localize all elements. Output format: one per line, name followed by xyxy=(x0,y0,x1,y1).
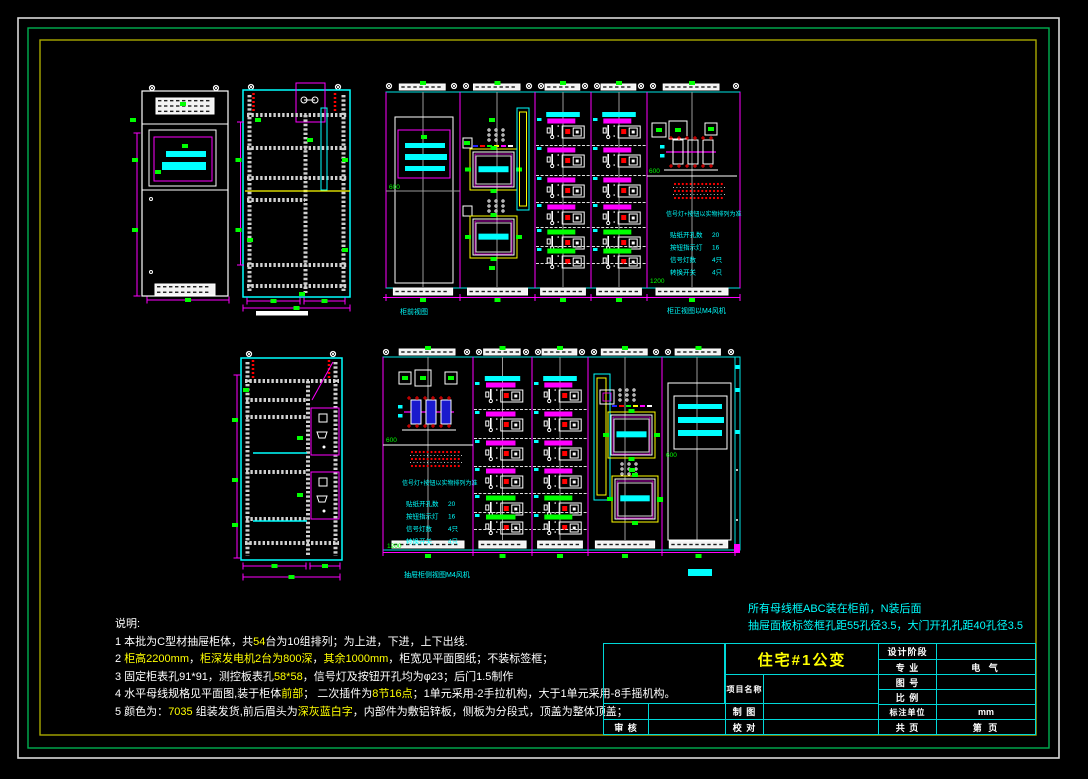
indicator-dot xyxy=(678,197,680,199)
cad-shape xyxy=(628,473,630,475)
panel-note-label: 信号灯数 xyxy=(670,255,697,264)
cad-shape xyxy=(475,440,480,443)
unit-nameplate xyxy=(478,234,508,240)
indicator-dot xyxy=(434,451,436,453)
cad-shape xyxy=(626,399,628,401)
cad-shape xyxy=(554,531,556,533)
dim-text-mark xyxy=(130,118,136,122)
panel-note-label: 转换开关 xyxy=(670,268,697,277)
dim-text-mark xyxy=(491,213,497,217)
indicator-dot xyxy=(430,465,432,467)
cad-shape xyxy=(593,147,598,150)
door-window-frame xyxy=(154,137,212,181)
check-label: 校 对 xyxy=(725,719,764,735)
cad-shape xyxy=(551,194,554,197)
cad-shape xyxy=(603,187,606,192)
cad-shape xyxy=(554,485,556,487)
cad-shape xyxy=(150,271,153,274)
indicator-dot xyxy=(446,465,448,467)
cad-shape xyxy=(678,430,722,436)
cad-shape xyxy=(573,424,576,427)
cad-shape xyxy=(554,512,556,514)
dim-text-mark xyxy=(656,128,662,132)
notes-segment: ，内部件为敷铝锌板，侧板为分段式，顶盖为整体顶盖； xyxy=(353,706,628,718)
dim-1200: 1200 xyxy=(650,278,665,285)
cad-shape xyxy=(613,221,615,223)
cad-shape xyxy=(600,390,614,404)
dim-text-mark xyxy=(299,292,305,296)
dim-1200: 1200 xyxy=(387,543,402,550)
indicator-dot xyxy=(411,465,413,467)
indicator-dot xyxy=(674,190,676,192)
panel-note-value: 20 xyxy=(712,232,720,239)
column-nameplate xyxy=(485,376,520,381)
dim-text-mark xyxy=(500,346,506,350)
cad-shape xyxy=(475,382,480,385)
notes-segment: 柜高2200mm xyxy=(124,653,189,665)
panel-note-label: 按钮指示灯 xyxy=(406,512,439,521)
cad-shape xyxy=(547,258,550,263)
cad-shape xyxy=(496,521,498,523)
dim-text-mark xyxy=(307,138,313,142)
cad-shape xyxy=(544,478,547,483)
cad-shape xyxy=(496,502,498,504)
cad-shape xyxy=(613,154,615,156)
notes-line-5: 5 颜色为：7035 组装发货,前后眉头为深灰蓝白字，内部件为敷铝锌板，侧板为分… xyxy=(115,704,675,722)
indicator-dot xyxy=(427,458,429,460)
busbar-notes: 所有母线框ABC装在柜前，N装后面 抽屉面板标签框孔距55孔径3.5，大门开孔孔… xyxy=(748,601,1023,635)
cad-shape xyxy=(554,502,556,504)
cad-shape xyxy=(619,394,621,396)
cad-shape xyxy=(573,395,576,398)
cad-shape xyxy=(534,411,539,414)
indicator-dot xyxy=(438,465,440,467)
cad-shape xyxy=(554,475,556,477)
indicator-dot xyxy=(693,197,695,199)
cad-shape xyxy=(632,242,635,245)
breaker-pole xyxy=(411,400,421,424)
cad-shape xyxy=(593,248,598,251)
indicator-lamp xyxy=(621,240,626,245)
notes-segment: 58*58 xyxy=(274,671,303,683)
cad-shape xyxy=(486,524,489,529)
cad-shape xyxy=(495,200,497,202)
door-panel xyxy=(395,117,453,283)
cad-shape xyxy=(486,505,489,510)
cad-shape xyxy=(405,166,445,171)
indicator-dot xyxy=(411,458,413,460)
cad-shape xyxy=(502,139,504,141)
cad-shape xyxy=(486,392,489,397)
panel-note-label: 按钮指示灯 xyxy=(670,243,703,252)
cad-shape xyxy=(534,514,539,517)
dim-text-mark xyxy=(322,299,328,303)
cad-shape xyxy=(537,118,542,121)
notes-segment: 8节16点 xyxy=(372,688,412,700)
panel-note-label: 转换开关 xyxy=(406,537,433,546)
indicator-lamp xyxy=(504,506,509,511)
cad-shape xyxy=(495,205,497,207)
column-nameplate xyxy=(543,376,577,381)
row-discipline-label: 专 业 xyxy=(878,659,937,675)
notes-segment: 柜深发电机2台为800深 xyxy=(200,653,312,665)
cad-shape xyxy=(544,421,547,426)
draw-value xyxy=(763,703,879,720)
indicator-dot xyxy=(686,190,688,192)
indicator-dot xyxy=(717,197,719,199)
cad-shape xyxy=(495,210,497,212)
dim-600: 600 xyxy=(389,184,400,191)
cad-shape xyxy=(463,206,472,216)
notes-segment: 7035 xyxy=(168,706,192,718)
cad-shape xyxy=(607,221,610,224)
drawer-label-strip xyxy=(544,469,572,474)
drawer-label-strip xyxy=(603,249,631,254)
cad-shape xyxy=(607,135,610,138)
cad-shape xyxy=(613,184,615,186)
busbar-note-line1: 所有母线框ABC装在柜前，N装后面 xyxy=(748,601,1023,618)
cad-shape xyxy=(514,481,517,484)
cad-shape xyxy=(628,463,630,465)
dim-text-mark xyxy=(491,257,497,261)
unit-nameplate xyxy=(620,495,649,501)
cad-shape xyxy=(496,389,498,391)
cad-shape xyxy=(678,417,724,423)
cad-shape xyxy=(557,265,559,267)
cad-shape xyxy=(607,265,610,268)
dim-text-mark xyxy=(180,102,186,106)
cad-shape xyxy=(547,128,550,133)
panel-note-label: 信号灯数 xyxy=(406,524,433,533)
dim-text-mark xyxy=(557,554,563,558)
notes-line-3: 3 固定柜表孔91*91，测控板表孔58*58，信号灯及按钮开孔均为φ23；后门… xyxy=(115,669,675,687)
cad-shape xyxy=(547,187,550,192)
notes-segment: 2 xyxy=(115,653,124,665)
cad-shape xyxy=(489,531,492,534)
cad-shape xyxy=(496,428,498,430)
notes-segment: 其余1000mm xyxy=(323,653,388,665)
row-pages-label: 共 页 xyxy=(878,719,937,735)
cad-shape xyxy=(613,125,615,127)
notes-title: 说明: xyxy=(115,616,675,634)
indicator-lamp xyxy=(565,129,570,134)
cad-shape xyxy=(514,395,517,398)
dim-text-mark xyxy=(689,81,695,85)
cad-shape xyxy=(576,160,579,163)
indicator-lamp xyxy=(565,240,570,245)
cad-shape xyxy=(660,145,665,149)
cad-shape xyxy=(551,265,554,268)
unit-nameplate xyxy=(616,431,646,437)
cad-shape xyxy=(502,134,504,136)
dim-text-mark xyxy=(185,298,191,302)
cad-shape xyxy=(496,457,498,459)
dim-text-mark xyxy=(132,228,138,232)
indicator-dot xyxy=(721,183,723,185)
cad-shape xyxy=(603,157,606,162)
dim-text-mark xyxy=(696,346,702,350)
cad-shape xyxy=(496,418,498,420)
indicator-dot xyxy=(430,458,432,460)
dim-text-mark xyxy=(420,81,426,85)
indicator-lamp xyxy=(565,188,570,193)
cad-shape xyxy=(736,469,738,471)
indicator-lamp xyxy=(565,158,570,163)
cad-shape xyxy=(544,505,547,510)
indicator-dot xyxy=(701,183,703,185)
indicator-lamp xyxy=(504,479,509,484)
cad-shape xyxy=(537,229,542,232)
cad-shape xyxy=(496,485,498,487)
caption-rear-view: 柜正视图以M4风机 xyxy=(667,306,726,315)
drawer-label-strip xyxy=(486,441,515,446)
dim-text-mark xyxy=(622,346,628,350)
cad-shape xyxy=(495,139,497,141)
column-nameplate xyxy=(546,112,580,117)
dim-text-mark xyxy=(500,554,506,558)
indicator-dot xyxy=(693,190,695,192)
notes-line-2: 2 柜高2200mm，柜深发电机2台为800深，其余1000mm，柜宽见平面图纸… xyxy=(115,651,675,669)
dim-text-mark xyxy=(247,238,253,242)
notes-segment: ，柜宽见平面图纸；不装标签框； xyxy=(388,653,553,665)
notes-segment: 台为10组排列；为上进，下进，上下出线. xyxy=(265,636,467,648)
cad-shape xyxy=(554,418,556,420)
panel-note-header: 信号灯+按钮以实物排列为准 xyxy=(402,479,478,487)
indicator-dot xyxy=(438,458,440,460)
indicator-dot xyxy=(450,451,452,453)
unit-nameplate xyxy=(478,166,508,172)
notes-segment: 5 颜色为： xyxy=(115,706,168,718)
dim-600: 600 xyxy=(666,452,677,459)
draw-label: 制 图 xyxy=(725,703,764,720)
dim-text-mark xyxy=(132,158,138,162)
drawer-label-strip xyxy=(486,496,515,501)
indicator-dot xyxy=(717,190,719,192)
dim-text-mark xyxy=(675,128,681,132)
indicator-dot xyxy=(438,451,440,453)
cad-shape xyxy=(475,495,480,498)
drawer-label-strip xyxy=(603,178,631,183)
drawer-label-strip xyxy=(486,383,515,388)
cad-shape xyxy=(613,265,615,267)
cad-shape xyxy=(537,177,542,180)
cad-shape xyxy=(496,447,498,449)
cad-shape xyxy=(734,544,740,552)
dim-text-mark xyxy=(425,554,431,558)
cad-shape xyxy=(736,388,740,392)
indicator-dot xyxy=(450,458,452,460)
drawing-title: 住宅#1公变 xyxy=(725,643,879,675)
dim-text-mark xyxy=(402,376,408,380)
dim-text-mark xyxy=(465,168,471,172)
cad-shape xyxy=(593,229,598,232)
notes-segment: 深灰蓝白字 xyxy=(298,706,353,718)
cad-shape xyxy=(554,457,556,459)
dim-text-mark xyxy=(342,158,348,162)
panel-note-value: 4只 xyxy=(448,538,459,546)
panel-note-value: 16 xyxy=(712,245,720,252)
dim-text-mark xyxy=(182,144,188,148)
indicator-dot xyxy=(450,465,452,467)
dim-text-mark xyxy=(322,564,328,568)
indicator-dot xyxy=(697,183,699,185)
end-panel-strip xyxy=(735,357,740,550)
dim-text-mark xyxy=(616,298,622,302)
drawer-label-strip xyxy=(544,383,572,388)
cad-shape xyxy=(544,450,547,455)
drawer-label-strip xyxy=(486,469,515,474)
indicator-dot xyxy=(686,197,688,199)
cad-shape xyxy=(323,510,326,513)
indicator-dot xyxy=(427,465,429,467)
drawer-label-strip xyxy=(547,178,575,183)
cad-shape xyxy=(554,447,556,449)
indicator-dot xyxy=(705,197,707,199)
drawer-label-strip xyxy=(544,412,572,417)
dim-text-mark xyxy=(465,235,471,239)
busbar-note-line2: 抽屉面板标签框孔距55孔径3.5，大门开孔孔距40孔径3.5 xyxy=(748,618,1023,635)
indicator-dot xyxy=(446,458,448,460)
cad-shape xyxy=(488,205,490,207)
dim-600: 600 xyxy=(649,168,660,175)
dim-text-mark xyxy=(489,266,495,270)
cad-shape xyxy=(150,198,153,201)
drawer-label-strip xyxy=(486,412,515,417)
cad-shape xyxy=(736,430,740,434)
cad-shape xyxy=(557,194,559,196)
cad-shape xyxy=(633,389,635,391)
dim-text-mark xyxy=(232,418,238,422)
indicator-dot xyxy=(682,190,684,192)
cad-shape xyxy=(613,211,615,213)
panel-note-value: 4只 xyxy=(448,525,459,533)
cad-shape xyxy=(537,147,542,150)
panel-note-value: 20 xyxy=(448,501,456,508)
dim-text-mark xyxy=(629,468,635,472)
riser-duct xyxy=(517,108,529,210)
indicator-lamp xyxy=(565,215,570,220)
drawer-label-strip xyxy=(603,230,631,235)
dim-text-mark xyxy=(464,141,470,145)
cad-shape xyxy=(502,210,504,212)
dim-text-mark xyxy=(495,81,501,85)
drawer-label-strip xyxy=(486,515,515,520)
cad-shape xyxy=(607,164,610,167)
notes-segment: ， xyxy=(189,653,200,665)
cad-shape xyxy=(551,164,554,167)
row-dim-unit-value: mm xyxy=(936,704,1036,720)
dim-text-mark xyxy=(495,298,501,302)
scale-bar xyxy=(256,311,308,316)
cad-shape xyxy=(405,143,445,148)
indicator-dot xyxy=(454,458,456,460)
indicator-lamp xyxy=(562,451,567,456)
caption-section-view: 抽屉柜侧视图M4风机 xyxy=(404,570,470,579)
dim-text-mark xyxy=(603,433,609,437)
cad-shape xyxy=(547,157,550,162)
panel-note-value: 4只 xyxy=(712,256,723,264)
caption-front-view: 柜前视图 xyxy=(400,307,428,316)
notes-segment: ； 二次插件为 xyxy=(303,688,372,700)
cad-shape xyxy=(593,204,598,207)
dim-text-mark xyxy=(289,575,295,579)
cad-shape xyxy=(520,112,527,206)
panel-note-label: 贴纸开孔数 xyxy=(670,230,703,239)
cad-shape xyxy=(475,514,480,517)
dim-text-mark xyxy=(629,409,635,413)
project-name-label: 项目名称 xyxy=(725,674,764,704)
nameplate-bar xyxy=(162,162,206,170)
cad-shape xyxy=(537,204,542,207)
drawer-label-strip xyxy=(603,119,631,124)
dim-text-mark xyxy=(297,493,303,497)
indicator-dot xyxy=(419,458,421,460)
check-value xyxy=(763,719,879,735)
indicator-dot xyxy=(678,190,680,192)
dim-text-mark xyxy=(420,376,426,380)
dim-text-mark xyxy=(236,228,242,232)
cad-shape xyxy=(621,463,623,465)
indicator-dot xyxy=(690,197,692,199)
cad-shape xyxy=(557,211,559,213)
dim-text-mark xyxy=(255,118,261,122)
indicator-lamp xyxy=(621,129,626,134)
cad-shape xyxy=(548,457,551,460)
indicator-lamp xyxy=(621,158,626,163)
notes-segment: 组装发货,前后眉头为 xyxy=(193,706,298,718)
indicator-dot xyxy=(674,197,676,199)
dim-600: 600 xyxy=(386,437,397,444)
indicator-lamp xyxy=(562,393,567,398)
cad-shape xyxy=(621,473,623,475)
title-block-logo-cell xyxy=(603,643,725,704)
cad-shape xyxy=(619,399,621,401)
cad-shape xyxy=(502,129,504,131)
dim-text-mark xyxy=(342,248,348,252)
cad-shape xyxy=(678,404,722,409)
cad-shape xyxy=(489,457,492,460)
cad-shape xyxy=(319,478,327,486)
dim-text-mark xyxy=(632,473,638,477)
indicator-dot xyxy=(713,183,715,185)
drawer-label-strip xyxy=(544,496,572,501)
indicator-dot xyxy=(721,197,723,199)
cad-shape xyxy=(486,421,489,426)
indicator-lamp xyxy=(621,188,626,193)
cad-shape xyxy=(593,118,598,121)
cad-shape xyxy=(534,495,539,498)
cad-shape xyxy=(534,382,539,385)
indicator-dot xyxy=(434,465,436,467)
breaker-pole xyxy=(441,400,451,424)
dim-text-mark xyxy=(491,189,497,193)
cad-shape xyxy=(626,394,628,396)
cad-shape xyxy=(534,468,539,471)
notes-segment: 1 本批为C型材抽屉柜体，共 xyxy=(115,636,253,648)
cad-shape xyxy=(488,210,490,212)
cad-shape xyxy=(489,399,492,402)
indicator-dot xyxy=(709,183,711,185)
cad-shape xyxy=(736,519,738,521)
indicator-dot xyxy=(427,451,429,453)
indicator-dot xyxy=(430,451,432,453)
cad-shape xyxy=(547,239,550,244)
panel-note-header: 信号灯+按钮以实物排列为准 xyxy=(666,210,742,218)
indicator-dot xyxy=(419,451,421,453)
indicator-dot xyxy=(415,458,417,460)
indicator-lamp xyxy=(504,451,509,456)
cad-shape xyxy=(502,200,504,202)
